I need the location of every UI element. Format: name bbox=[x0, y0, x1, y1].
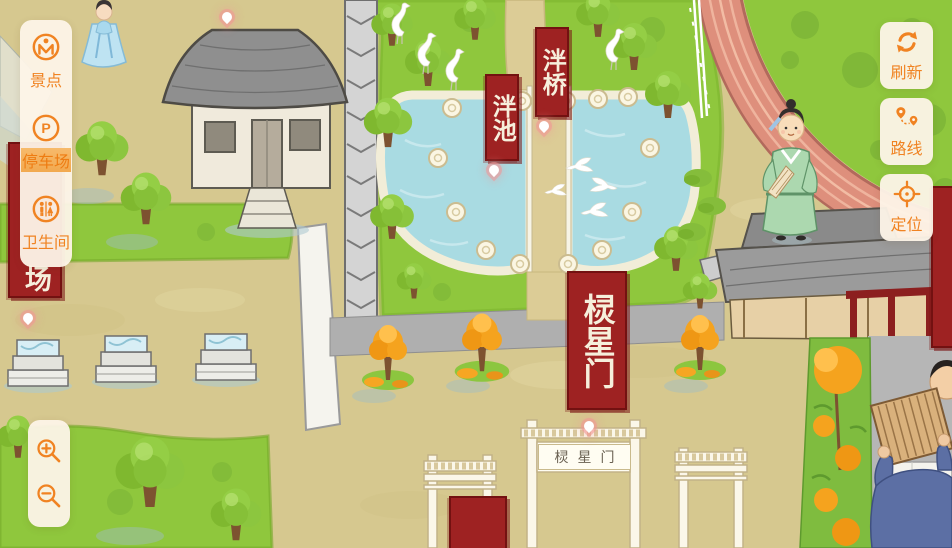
zoom-out-icon bbox=[35, 482, 63, 510]
sidebar-item-parking[interactable]: P 停车场 bbox=[21, 113, 71, 172]
zoom-in-icon bbox=[35, 437, 63, 465]
banner-pan-pond[interactable]: 泮池 bbox=[485, 74, 519, 161]
route-icon bbox=[893, 104, 921, 132]
zoom-panel bbox=[28, 420, 70, 527]
sidebar-label-parking: 停车场 bbox=[21, 148, 71, 172]
banner-partial-bottom[interactable] bbox=[449, 496, 507, 548]
banner-partial-right[interactable] bbox=[931, 186, 952, 348]
route-button[interactable]: 路线 bbox=[880, 98, 933, 165]
stone-platforms bbox=[4, 334, 260, 393]
scenic-spot-icon bbox=[31, 32, 61, 62]
map-tools-panel: 刷新 路线 定位 bbox=[880, 22, 933, 241]
sidebar-label-restroom: 卫生间 bbox=[22, 229, 70, 253]
refresh-label: 刷新 bbox=[890, 59, 922, 83]
banner-pan-bridge[interactable]: 泮桥 bbox=[535, 27, 569, 117]
locate-label: 定位 bbox=[890, 211, 922, 235]
locate-icon bbox=[893, 180, 921, 208]
restroom-icon bbox=[31, 194, 61, 224]
map-stage: 泮桥 泮池 棂星门 场 棂星门 景点 P 停车场 卫生间 bbox=[0, 0, 952, 548]
svg-text:P: P bbox=[41, 120, 50, 136]
parking-icon: P bbox=[31, 113, 61, 143]
refresh-icon bbox=[893, 28, 921, 56]
banner-lingxing-gate[interactable]: 棂星门 bbox=[567, 271, 627, 410]
locate-button[interactable]: 定位 bbox=[880, 174, 933, 241]
zoom-out-button[interactable] bbox=[34, 481, 64, 511]
sidebar-item-restroom[interactable]: 卫生间 bbox=[22, 194, 70, 253]
zoom-in-button[interactable] bbox=[34, 436, 64, 466]
route-label: 路线 bbox=[890, 135, 922, 159]
sidebar-item-scenic[interactable]: 景点 bbox=[30, 32, 62, 91]
gate-plaque: 棂星门 bbox=[538, 444, 631, 470]
sidebar-label-scenic: 景点 bbox=[30, 67, 62, 91]
scenic-map-illustration[interactable] bbox=[0, 0, 952, 548]
map-legend-panel: 景点 P 停车场 卫生间 bbox=[20, 20, 72, 267]
refresh-button[interactable]: 刷新 bbox=[880, 22, 933, 89]
